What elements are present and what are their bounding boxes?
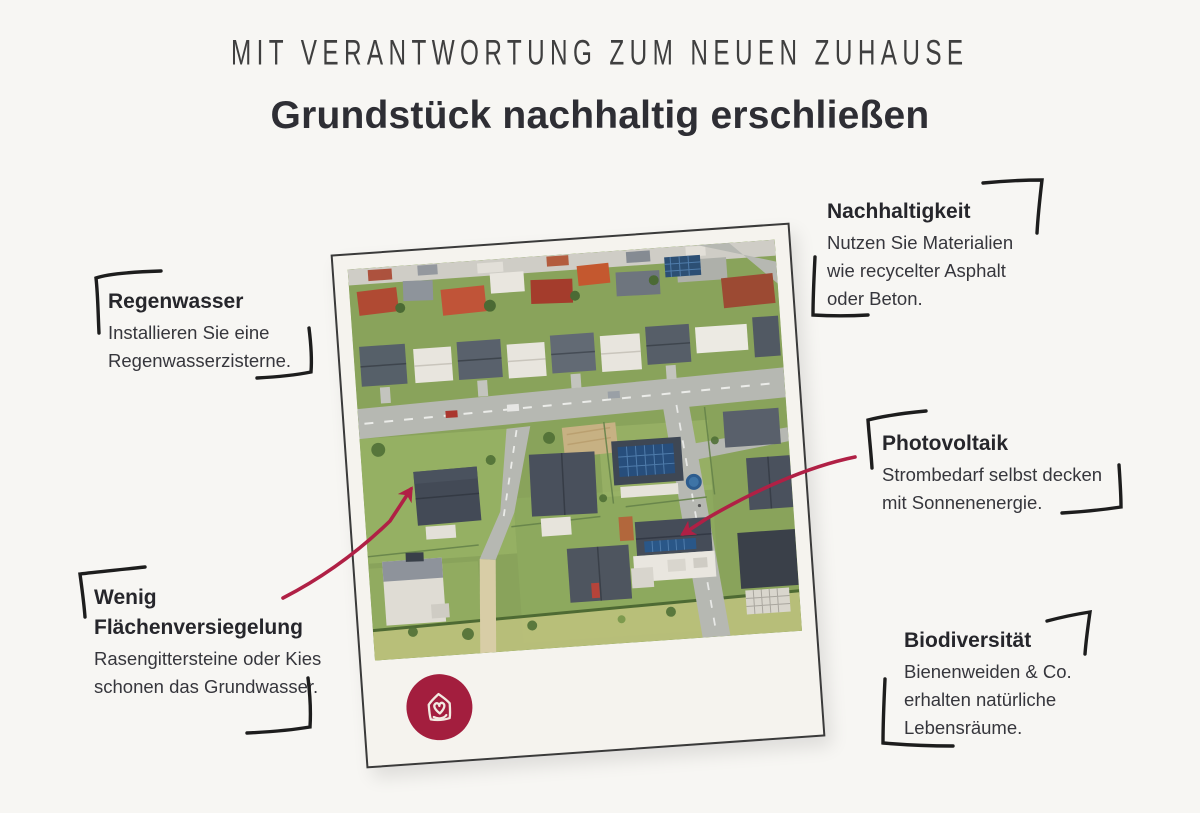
callout-nachhaltigkeit: Nachhaltigkeit Nutzen Sie Materialien wi… bbox=[827, 197, 1039, 313]
callout-title: Regenwasser bbox=[108, 287, 308, 317]
callout-photovoltaik: Photovoltaik Strombedarf selbst decken m… bbox=[882, 429, 1126, 517]
header-kicker: MIT VERANTWORTUNG ZUM NEUEN ZUHAUSE bbox=[231, 33, 969, 74]
polaroid-photo-frame bbox=[331, 223, 826, 769]
header-kicker-wrap: MIT VERANTWORTUNG ZUM NEUEN ZUHAUSE bbox=[0, 38, 1200, 69]
infographic-page: MIT VERANTWORTUNG ZUM NEUEN ZUHAUSE Grun… bbox=[0, 0, 1200, 813]
house-dark-roof-target bbox=[413, 466, 481, 525]
callout-title: Biodiversität bbox=[904, 626, 1109, 656]
callout-body: Strombedarf selbst decken mit Sonnenener… bbox=[882, 461, 1126, 517]
callout-title: Photovoltaik bbox=[882, 429, 1126, 459]
callout-flaechenversiegelung: Wenig Flächenversiegelung Rasengitterste… bbox=[94, 583, 322, 701]
callout-body: Bienenweiden & Co. erhalten natürliche L… bbox=[904, 658, 1109, 742]
aerial-photo bbox=[348, 240, 802, 661]
house-heart-icon bbox=[417, 685, 462, 730]
callout-body: Installieren Sie eine Regenwasserzistern… bbox=[108, 319, 308, 375]
page-title: Grundstück nachhaltig erschließen bbox=[0, 94, 1200, 138]
callout-title: Wenig Flächenversiegelung bbox=[94, 583, 322, 643]
callout-biodiversitaet: Biodiversität Bienenweiden & Co. erhalte… bbox=[904, 626, 1109, 742]
callout-regenwasser: Regenwasser Installieren Sie eine Regenw… bbox=[108, 287, 308, 375]
callout-title: Nachhaltigkeit bbox=[827, 197, 1039, 227]
callout-body: Nutzen Sie Materialien wie recycelter As… bbox=[827, 229, 1039, 313]
aerial-photo-illustration bbox=[348, 240, 802, 661]
house-heart-logo bbox=[404, 672, 474, 742]
callout-body: Rasengittersteine oder Kies schonen das … bbox=[94, 645, 322, 701]
